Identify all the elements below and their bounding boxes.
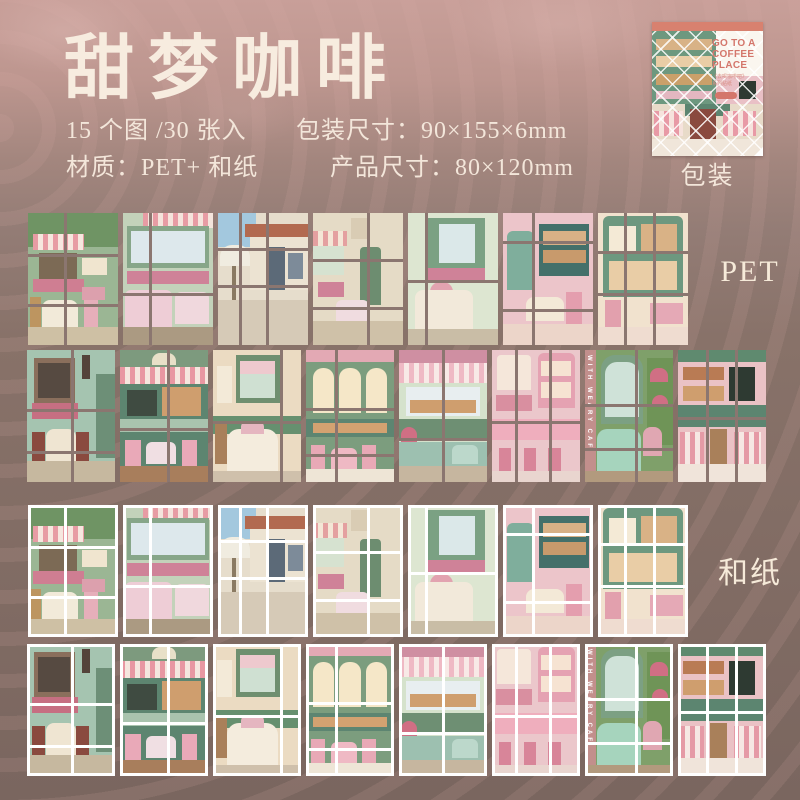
sticker-sheet-pink-awning-green-wall-cafe [28,213,118,345]
art-shape [313,231,347,246]
art-shape [146,736,176,757]
art-shape [268,247,284,289]
sticker-sheet-green-cabinet-bakery [598,505,688,637]
art-shape [82,649,91,673]
art-shape [33,571,83,584]
art-shape [339,368,360,413]
art-shape [127,390,157,416]
pet-sheet-row-1 [28,213,688,345]
art-shape [82,258,107,275]
sticker-sheet-arch-display-windows [306,350,394,482]
art-shape [598,327,688,345]
art-shape [288,253,302,279]
art-shape [127,684,157,710]
art-shape [33,234,83,250]
art-shape [548,742,560,768]
art-shape [729,367,755,401]
art-shape [499,742,511,768]
art-shape [548,448,560,474]
art-shape [503,324,593,345]
diecut-line [408,280,498,283]
art-shape [131,231,205,263]
art-shape [306,763,394,776]
art-shape [541,655,571,671]
art-shape [162,387,201,416]
art-shape [240,655,275,668]
sticker-sheet-pink-chalkboard-cafe [678,644,766,776]
sticker-sheet-courtyard-umbrella [218,505,308,637]
art-shape [415,290,473,330]
art-shape [439,224,475,264]
art-shape [605,300,621,329]
package-title-line: PLACE [712,60,763,71]
art-shape [218,300,308,345]
art-shape [84,592,98,618]
washi-sheet-row-2: WITH WEARY CAF [27,644,766,776]
art-shape [656,74,712,85]
art-shape [492,713,580,734]
sticker-sheet-scallop-awning-bakery-front [120,350,208,482]
art-shape [120,367,208,384]
art-shape [331,448,357,469]
art-shape [680,726,705,758]
art-shape [146,442,176,463]
art-shape [217,366,233,403]
art-shape [182,440,198,469]
art-shape [566,584,582,616]
art-shape [306,644,394,656]
art-shape [541,676,571,692]
art-shape [605,362,638,417]
art-shape [313,246,344,275]
art-shape [650,662,668,675]
art-shape [650,303,682,324]
art-shape [507,523,534,581]
art-shape [652,139,763,157]
art-shape [492,471,580,482]
art-shape [313,538,344,567]
art-shape [339,662,360,707]
art-shape [399,657,487,677]
art-shape [125,734,141,763]
section-label-washi: 和纸 [698,548,800,592]
art-shape [526,297,564,321]
art-shape [408,329,498,345]
art-shape [439,516,475,556]
spec-product-size: 产品尺寸：80×120mm [330,147,574,182]
art-shape [245,224,308,237]
art-shape [524,742,536,768]
art-shape [410,694,477,707]
package-corner-fold [754,147,763,156]
art-shape [656,39,712,50]
art-shape [28,619,118,637]
art-shape [125,290,172,327]
art-shape [241,421,264,434]
spec-package-size: 包装尺寸：90×155×6mm [296,110,567,145]
art-shape [541,361,571,377]
art-shape [220,245,251,266]
art-shape [710,429,728,463]
art-shape [366,662,387,707]
art-shape [33,279,83,292]
art-shape [734,726,760,758]
package-title-line: GO TO A [712,38,763,49]
art-shape [313,423,387,434]
art-shape [232,266,236,300]
art-shape [428,560,486,572]
art-shape [120,760,208,776]
diecut-line [408,572,498,575]
art-shape [28,327,118,345]
art-shape [39,253,77,279]
sticker-sheet-cream-facade-green-door [313,505,403,637]
art-shape [215,718,227,758]
side-vertical-text: WITH WEARY CAF [586,649,592,744]
art-shape [492,765,580,776]
art-shape [654,111,683,136]
art-shape [313,662,334,707]
art-shape [710,723,728,757]
spec-count: 15 个图 /30 张入 [66,110,247,145]
sticker-sheet-floral-awning-green-counter [399,644,487,776]
sticker-sheet-striped-awning-window-tables [123,213,213,345]
sticker-sheet-weary-arch-garden: WITH WEARY CAF [585,644,673,776]
art-shape [362,445,376,471]
art-shape [220,537,251,558]
art-shape [33,526,83,542]
art-shape [641,224,677,253]
package-title-line: COFFEE [712,49,763,60]
art-shape [605,592,621,621]
art-shape [543,523,586,536]
art-shape [566,292,582,324]
art-shape [366,368,387,413]
pet-sheet-row-2: WITH WEARY CAF [27,350,766,482]
sticker-sheet-pink-bakery-interior [503,505,593,637]
sticker-sheet-courtyard-umbrella [218,213,308,345]
art-shape [227,723,278,765]
art-shape [42,300,78,326]
art-shape [609,226,636,252]
washi-sheet-row-1 [28,505,688,637]
art-shape [678,644,766,656]
art-shape [497,355,530,389]
art-shape [723,111,756,136]
art-shape [678,699,766,720]
art-shape [597,429,641,471]
art-shape [82,550,107,567]
art-shape [39,545,77,571]
art-shape [541,382,571,398]
art-shape [650,595,682,616]
art-shape [609,261,677,290]
art-shape [96,668,115,752]
sticker-sheet-floral-awning-green-counter [399,350,487,482]
art-shape [318,574,343,590]
art-shape [162,681,201,710]
art-shape [38,657,70,691]
art-shape [652,395,668,407]
package-subtitle-line: 系列贴纸 [712,81,762,88]
side-vertical-text: WITH WEARY CAF [586,355,592,450]
art-shape [152,647,177,659]
art-shape [32,697,78,713]
art-shape [524,448,536,474]
sticker-sheet-arch-display-windows [306,644,394,776]
art-shape [609,553,677,582]
art-shape [408,621,498,637]
art-shape [678,758,766,776]
art-shape [503,616,593,637]
art-shape [245,516,308,529]
art-shape [678,405,766,426]
art-shape [678,350,766,362]
sticker-sheet-pink-shelf-counter-stools [492,350,580,482]
art-shape [131,523,205,555]
art-shape [82,579,105,592]
art-shape [360,247,382,305]
art-shape [678,464,766,482]
art-shape [313,321,403,345]
art-shape [683,386,723,402]
sticker-sheet-lace-window-tea-table [213,644,301,776]
art-shape [46,429,76,461]
sticker-sheet-cream-facade-green-door [313,213,403,345]
art-shape [120,466,208,482]
art-shape [213,471,301,482]
sticker-sheet-pink-awning-green-wall-cafe [28,505,118,637]
package-badge [715,92,737,99]
art-shape [84,300,98,326]
sticker-sheet-mint-wall-bistro [27,644,115,776]
art-shape [643,427,662,456]
art-shape [120,661,208,678]
sticker-sheet-pink-chalkboard-cafe [678,350,766,482]
art-shape [428,268,486,280]
art-shape [125,440,141,469]
art-shape [30,297,41,329]
sticker-sheet-pink-shelf-counter-stools [492,644,580,776]
art-shape [123,327,213,345]
art-shape [499,448,511,474]
art-shape [690,109,717,139]
art-shape [452,739,478,757]
art-shape [120,713,208,726]
art-shape [585,765,673,776]
art-shape [268,539,284,581]
art-shape [182,734,198,763]
art-shape [240,361,275,374]
art-shape [492,419,580,440]
art-shape [643,721,662,750]
art-shape [656,56,712,67]
art-shape [399,466,487,482]
art-shape [497,649,530,683]
art-shape [288,545,302,571]
art-shape [683,367,723,380]
art-shape [125,582,172,619]
sticker-sheet-lace-window-tea-table [213,350,301,482]
art-shape [331,742,357,763]
sticker-sheet-scallop-awning-bakery-front [120,644,208,776]
art-shape [227,429,278,471]
art-shape [360,539,382,597]
art-shape [313,717,387,728]
package-title: GO TO A COFFEE PLACE [712,38,763,71]
art-shape [734,432,760,464]
spec-material: 材质：PET+ 和纸 [66,147,258,182]
art-shape [313,613,403,637]
art-shape [127,271,210,284]
art-shape [362,739,376,765]
art-shape [232,558,236,592]
art-shape [452,445,478,463]
art-shape [306,469,394,482]
art-shape [38,363,70,397]
art-shape [311,445,325,471]
art-shape [399,760,487,776]
art-shape [399,350,487,363]
art-shape [683,661,723,674]
sticker-sheet-green-shutter-window-bouquet [408,505,498,637]
art-shape [217,660,233,697]
sticker-sheet-green-cabinet-bakery [598,213,688,345]
package-caption: 包装 [652,156,763,192]
package-subtitle: 《去喝咖啡吧》 系列贴纸 [712,74,762,88]
product-promo-image: 甜梦咖啡 15 个图 /30 张入 材质：PET+ 和纸 包装尺寸：90×155… [0,0,800,800]
art-shape [351,510,369,531]
art-shape [120,419,208,432]
art-shape [311,739,325,765]
art-shape [543,231,586,244]
art-shape [680,432,705,464]
package-preview: GO TO A COFFEE PLACE 《去喝咖啡吧》 系列贴纸 [652,22,763,156]
art-shape [27,755,115,776]
art-shape [598,619,688,637]
art-shape [641,516,677,545]
art-shape [241,715,264,728]
art-shape [351,218,369,239]
section-label-pet: PET [698,255,800,289]
art-shape [127,563,210,576]
art-shape [496,689,533,705]
art-shape [32,403,78,419]
art-shape [175,292,209,324]
art-shape [729,661,755,695]
art-shape [152,353,177,365]
art-shape [526,589,564,613]
art-shape [240,668,275,692]
sticker-sheet-mint-wall-bistro [27,350,115,482]
art-shape [597,723,641,765]
art-shape [82,287,105,300]
art-shape [543,250,586,263]
page-title: 甜梦咖啡 [64,12,400,113]
art-shape [318,282,343,298]
art-shape [605,656,638,711]
art-shape [313,523,347,538]
art-shape [650,368,668,381]
art-shape [415,582,473,622]
art-shape [218,592,308,637]
art-shape [82,355,91,379]
art-shape [46,723,76,755]
art-shape [123,619,213,637]
art-shape [30,589,41,621]
sticker-sheet-pink-bakery-interior [503,213,593,345]
art-shape [213,765,301,776]
art-shape [306,350,394,362]
package-top-band [652,22,763,31]
art-shape [399,644,487,657]
sticker-sheet-weary-arch-garden: WITH WEARY CAF [585,350,673,482]
art-shape [410,400,477,413]
art-shape [215,424,227,464]
art-shape [652,689,668,701]
art-shape [42,592,78,618]
art-shape [313,368,334,413]
art-shape [496,395,533,411]
sticker-sheet-striped-awning-window-tables [123,505,213,637]
art-shape [240,374,275,398]
art-shape [585,471,673,482]
art-shape [543,542,586,555]
art-shape [175,584,209,616]
sticker-sheet-green-shutter-window-bouquet [408,213,498,345]
art-shape [656,91,712,99]
art-shape [27,461,115,482]
art-shape [507,231,534,289]
art-shape [96,374,115,458]
art-shape [683,680,723,696]
art-shape [399,363,487,383]
art-shape [609,518,636,544]
